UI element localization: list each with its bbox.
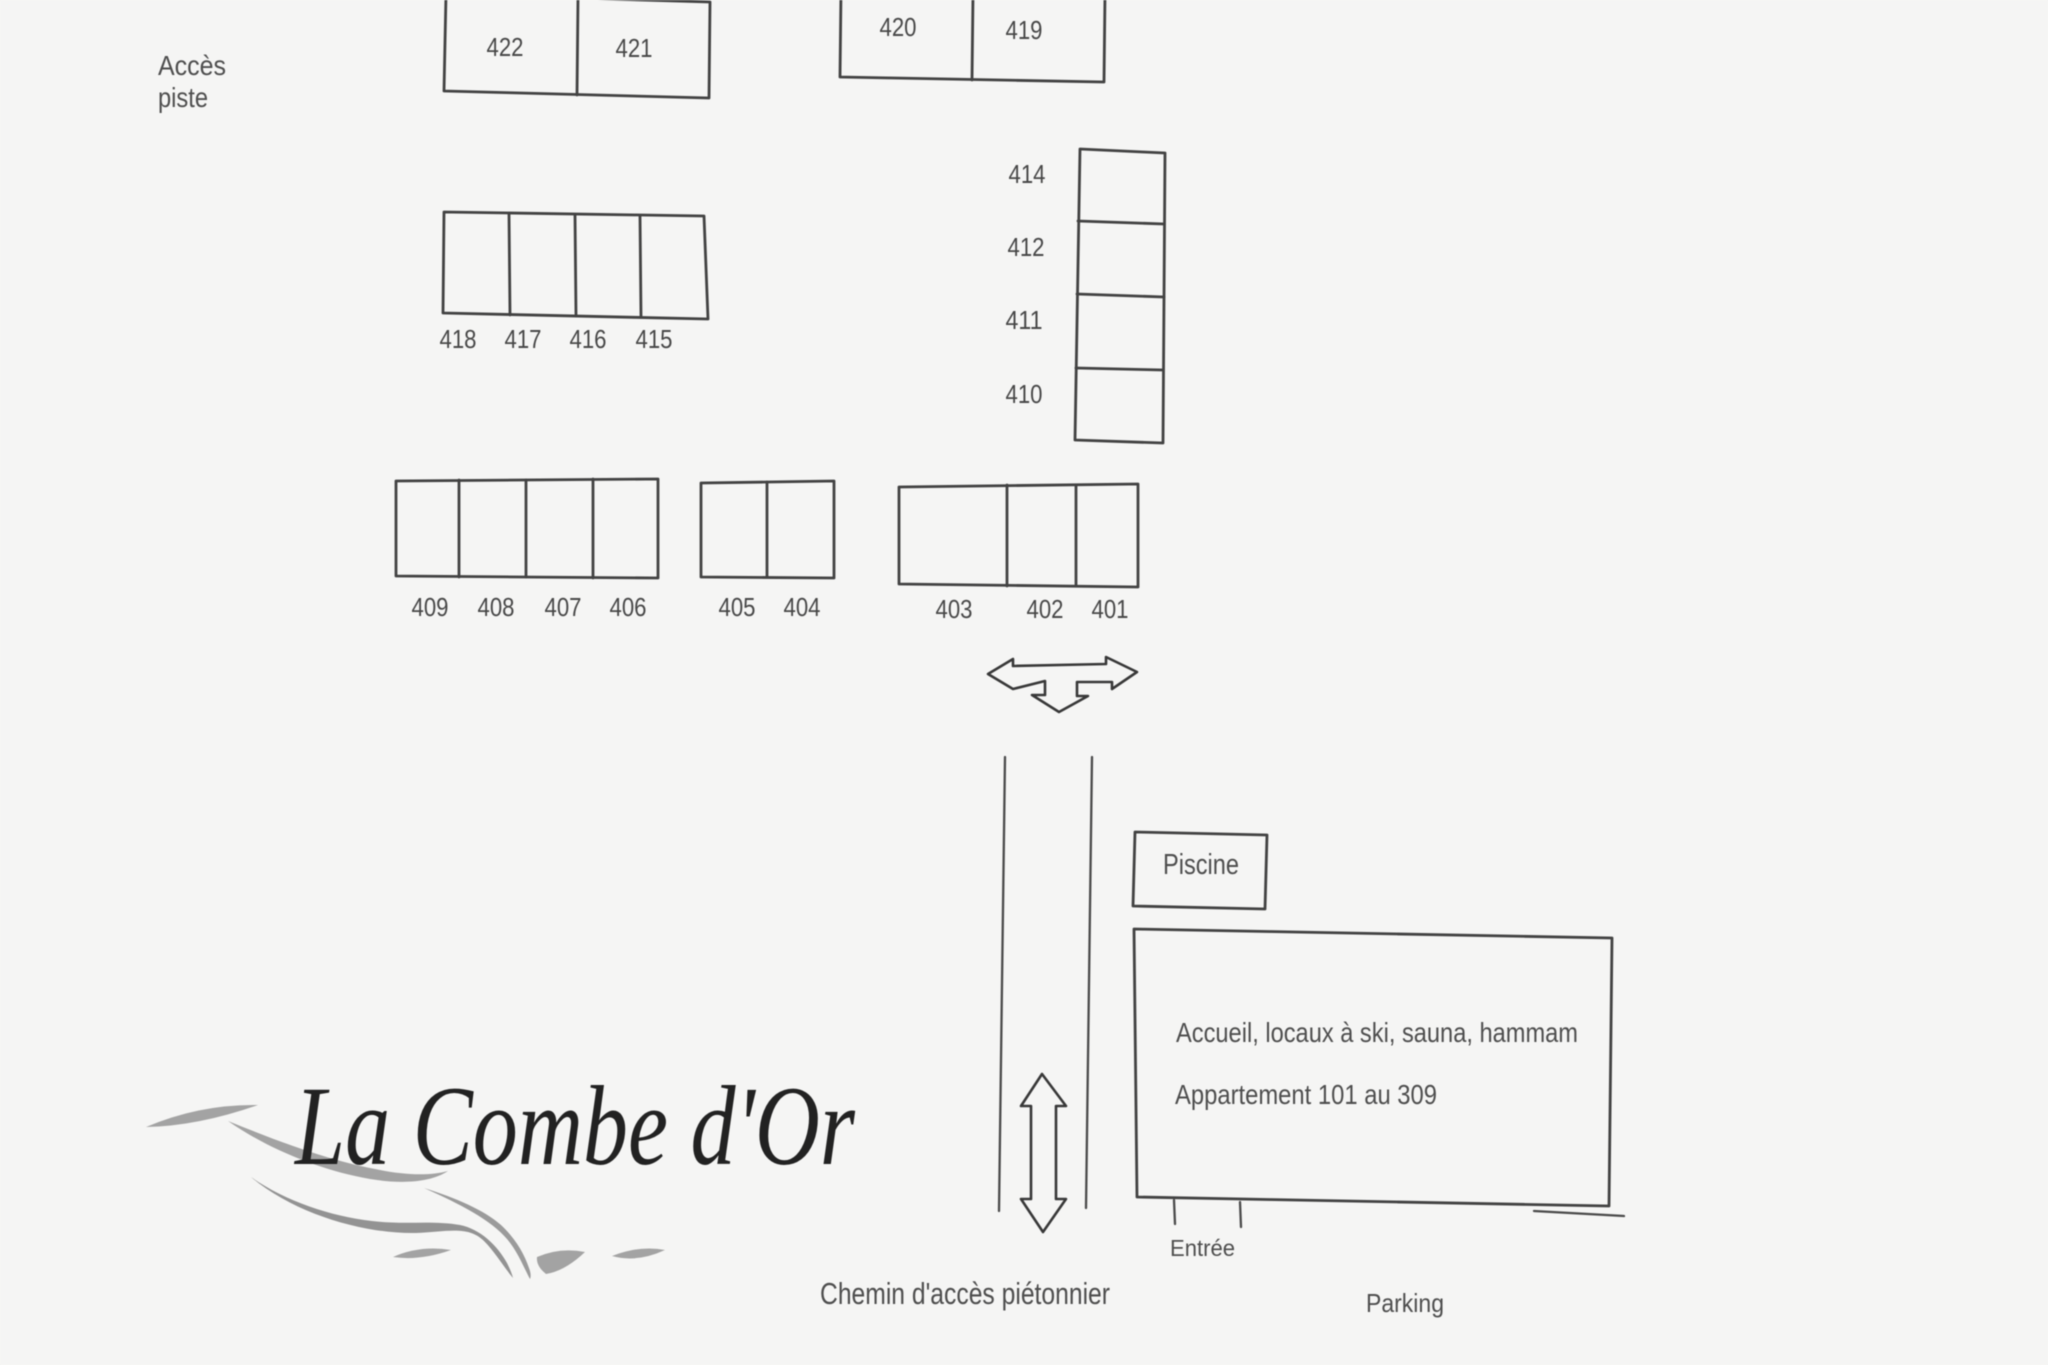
svg-text:407: 407 (545, 592, 582, 622)
svg-text:410: 410 (1006, 379, 1043, 409)
svg-text:Chemin d'accès piétonnier: Chemin d'accès piétonnier (820, 1276, 1110, 1311)
svg-text:411: 411 (1006, 305, 1043, 335)
svg-text:412: 412 (1008, 232, 1045, 262)
svg-text:420: 420 (880, 12, 917, 42)
svg-text:404: 404 (784, 592, 821, 622)
svg-text:405: 405 (719, 592, 756, 622)
svg-text:418: 418 (440, 324, 477, 354)
svg-text:403: 403 (936, 594, 973, 624)
svg-text:La Combe d'Or: La Combe d'Or (293, 1064, 855, 1189)
svg-text:408: 408 (478, 592, 515, 622)
svg-text:Appartement 101 au 309: Appartement 101 au 309 (1175, 1079, 1437, 1110)
svg-text:421: 421 (616, 33, 653, 63)
svg-text:406: 406 (610, 592, 647, 622)
svg-text:Accès: Accès (158, 50, 226, 81)
svg-text:401: 401 (1092, 594, 1129, 624)
svg-text:Accueil, locaux à ski, sauna,: Accueil, locaux à ski, sauna, hammam (1176, 1017, 1578, 1048)
svg-text:Parking: Parking (1366, 1288, 1444, 1318)
svg-text:415: 415 (636, 324, 673, 354)
svg-text:piste: piste (158, 82, 208, 113)
svg-text:419: 419 (1006, 15, 1043, 45)
svg-text:402: 402 (1027, 594, 1064, 624)
svg-text:417: 417 (505, 324, 542, 354)
svg-text:Entrée: Entrée (1170, 1235, 1235, 1261)
svg-text:Piscine: Piscine (1163, 849, 1239, 881)
svg-text:414: 414 (1009, 159, 1046, 189)
svg-text:416: 416 (570, 324, 607, 354)
svg-text:409: 409 (412, 592, 449, 622)
svg-text:422: 422 (487, 32, 524, 62)
